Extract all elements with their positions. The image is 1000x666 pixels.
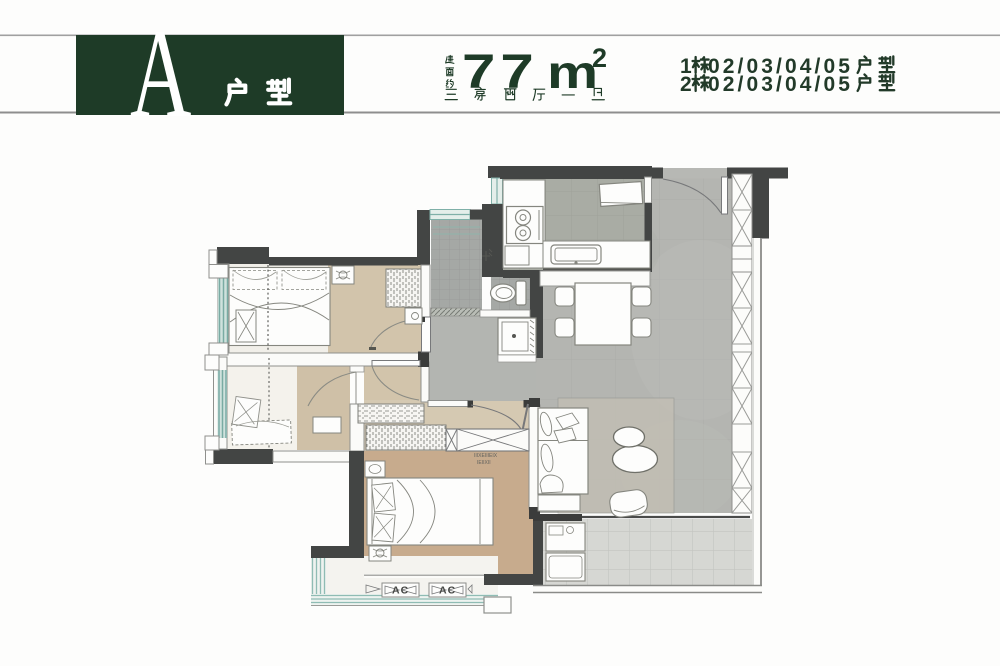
svg-text:77: 77 — [462, 45, 539, 99]
svg-text:m: m — [547, 47, 598, 98]
svg-text:AC: AC — [392, 585, 409, 597]
svg-text:IIIXEIIIEIX: IIIXEIIIEIX — [474, 453, 498, 459]
svg-text:2: 2 — [592, 43, 607, 73]
svg-text:02/03/04/05: 02/03/04/05 — [708, 73, 853, 96]
svg-text:A: A — [130, 4, 191, 144]
svg-text:IEIIXII: IEIIXII — [477, 460, 491, 466]
svg-text:2: 2 — [680, 73, 692, 96]
svg-text:AC: AC — [439, 585, 456, 597]
